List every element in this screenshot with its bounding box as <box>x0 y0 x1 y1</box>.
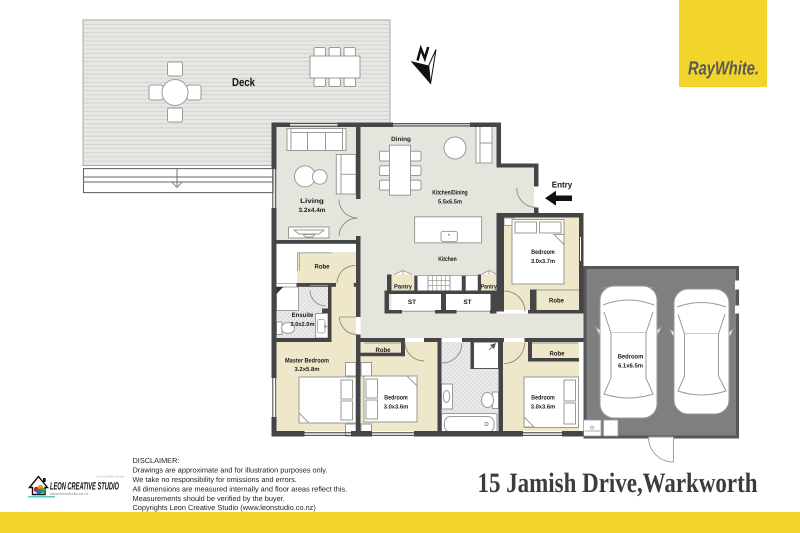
svg-text:5.5x6.5m: 5.5x6.5m <box>438 199 462 206</box>
svg-text:Robe: Robe <box>376 347 391 354</box>
svg-text:Drawings are approximate and f: Drawings are approximate and for illustr… <box>133 465 328 474</box>
svg-text:Robe: Robe <box>315 264 330 271</box>
svg-text:All dimensions are measured in: All dimensions are measured internally a… <box>133 484 348 493</box>
svg-text:Robe: Robe <box>550 351 565 358</box>
svg-text:ST: ST <box>463 299 471 306</box>
svg-text:Bedroom: Bedroom <box>531 395 555 402</box>
svg-text:Measurements should be verifie: Measurements should be verified by the b… <box>133 494 285 503</box>
svg-text:www.leonstudio.co.nz: www.leonstudio.co.nz <box>50 491 88 496</box>
svg-text:Copyrights Leon Creative Studi: Copyrights Leon Creative Studio (www.leo… <box>133 503 316 512</box>
svg-text:Kitchen: Kitchen <box>438 256 457 263</box>
svg-text:We take no responsibility for: We take no responsibility for omissions … <box>133 475 297 484</box>
svg-text:Dining: Dining <box>391 136 411 143</box>
svg-text:Pantry: Pantry <box>481 284 497 291</box>
svg-text:Master Bedroom: Master Bedroom <box>285 358 329 365</box>
svg-text:3.0x3.7m: 3.0x3.7m <box>531 258 555 265</box>
svg-text:2.0x2.0m: 2.0x2.0m <box>291 321 315 328</box>
svg-text:3.2x4.4m: 3.2x4.4m <box>299 207 327 214</box>
svg-text:6.1x6.5m: 6.1x6.5m <box>618 363 643 370</box>
svg-text:15 Jamish Drive,Warkworth: 15 Jamish Drive,Warkworth <box>478 468 758 499</box>
svg-text:3.2x5.8m: 3.2x5.8m <box>295 366 320 373</box>
svg-text:Living: Living <box>300 198 324 205</box>
svg-text:Kitchen/Dining: Kitchen/Dining <box>432 190 467 197</box>
svg-text:RayWhite.: RayWhite. <box>688 59 759 80</box>
svg-text:Entry: Entry <box>552 180 573 190</box>
svg-text:Pantry: Pantry <box>394 284 413 291</box>
svg-text:DISCLAIMER:: DISCLAIMER: <box>133 456 180 465</box>
svg-text:Bedroom: Bedroom <box>618 354 644 361</box>
svg-text:Deck: Deck <box>232 77 255 89</box>
svg-text:Bedroom: Bedroom <box>384 395 408 402</box>
svg-text:Bedroom: Bedroom <box>531 249 555 256</box>
svg-text:ST: ST <box>408 299 416 306</box>
svg-text:3.0x3.6m: 3.0x3.6m <box>384 404 409 411</box>
svg-text:Ensuite: Ensuite <box>292 312 314 319</box>
svg-text:Leon Creative Studio: Leon Creative Studio <box>96 475 124 479</box>
svg-text:Robe: Robe <box>549 298 564 305</box>
svg-text:3.0x3.6m: 3.0x3.6m <box>531 404 556 411</box>
